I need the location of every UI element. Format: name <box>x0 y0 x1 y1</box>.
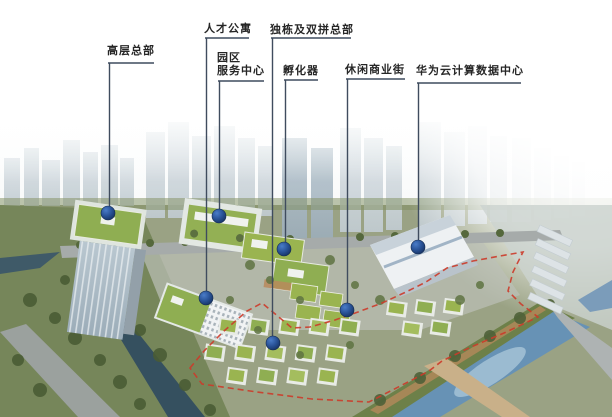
label-detached-duplex-hq: 独栋及双拼总部 <box>270 24 354 37</box>
marker-dot-high-rise-hq <box>101 206 115 220</box>
aerial-rendering <box>0 0 612 417</box>
label-park-service-center: 园区 服务中心 <box>217 52 265 78</box>
label-huawei-cloud-datacenter: 华为云计算数据中心 <box>416 65 524 78</box>
marker-dot-leisure-commercial-street <box>340 303 354 317</box>
marker-dot-incubator <box>277 242 291 256</box>
marker-dot-huawei-cloud-datacenter <box>411 240 425 254</box>
marker-dot-talent-apartments <box>199 291 213 305</box>
masterplan-figure: 高层总部 人才公寓 独栋及双拼总部 园区 服务中心 孵化器 休闲商业街 华为云计… <box>0 0 612 417</box>
label-incubator: 孵化器 <box>283 65 319 78</box>
marker-dot-park-service-center <box>212 209 226 223</box>
label-talent-apartments: 人才公寓 <box>204 23 252 36</box>
label-leisure-commercial-street: 休闲商业街 <box>345 64 405 77</box>
label-high-rise-hq: 高层总部 <box>107 45 155 58</box>
photo-area <box>0 0 612 417</box>
marker-dot-detached-duplex-hq <box>266 336 280 350</box>
